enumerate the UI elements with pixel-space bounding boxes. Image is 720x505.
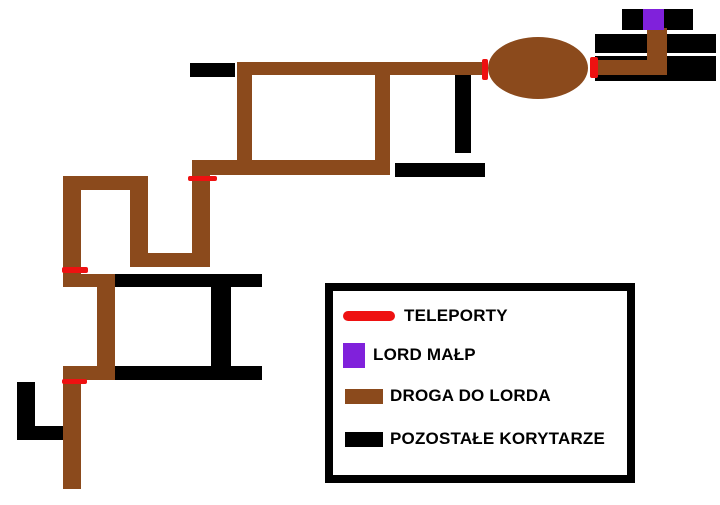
legend-item-teleporty: TELEPORTY	[343, 303, 508, 329]
road-segment	[192, 160, 390, 175]
teleport-mark	[62, 267, 88, 273]
corridor-segment	[211, 275, 231, 379]
corridor-segment	[455, 75, 471, 153]
corridor-bar-icon	[345, 432, 383, 447]
road-segment	[63, 366, 81, 489]
dungeon-map-canvas: TELEPORTY LORD MAŁP DROGA DO LORDA POZOS…	[0, 0, 720, 505]
road-segment	[375, 62, 390, 174]
teleport-mark	[62, 379, 87, 384]
teleport-mark	[188, 176, 217, 181]
corridor-segment	[17, 426, 65, 440]
lord-malp-marker	[643, 9, 664, 30]
road-segment	[130, 189, 148, 267]
teleport-line-icon	[343, 311, 395, 321]
road-segment	[237, 62, 252, 165]
legend-label: LORD MAŁP	[373, 345, 476, 365]
legend-label: TELEPORTY	[404, 306, 508, 326]
lord-square-icon	[343, 343, 365, 368]
legend-item-droga-do-lorda: DROGA DO LORDA	[345, 383, 551, 409]
legend-box: TELEPORTY LORD MAŁP DROGA DO LORDA POZOS…	[325, 283, 635, 483]
road-segment	[97, 274, 115, 368]
corridor-segment	[115, 366, 262, 380]
teleport-mark	[590, 57, 598, 78]
road-segment	[237, 62, 485, 75]
legend-item-lord-malp: LORD MAŁP	[343, 342, 476, 368]
road-bar-icon	[345, 389, 383, 404]
corridor-segment	[190, 63, 235, 77]
corridor-segment	[115, 274, 262, 287]
teleport-mark	[482, 59, 488, 80]
legend-item-pozostale-korytarze: POZOSTAŁE KORYTARZE	[345, 426, 605, 452]
lord-room-ellipse	[488, 37, 588, 99]
corridor-segment	[395, 163, 485, 177]
legend-label: DROGA DO LORDA	[390, 386, 551, 406]
legend-label: POZOSTAŁE KORYTARZE	[390, 429, 605, 449]
road-segment	[647, 28, 667, 75]
